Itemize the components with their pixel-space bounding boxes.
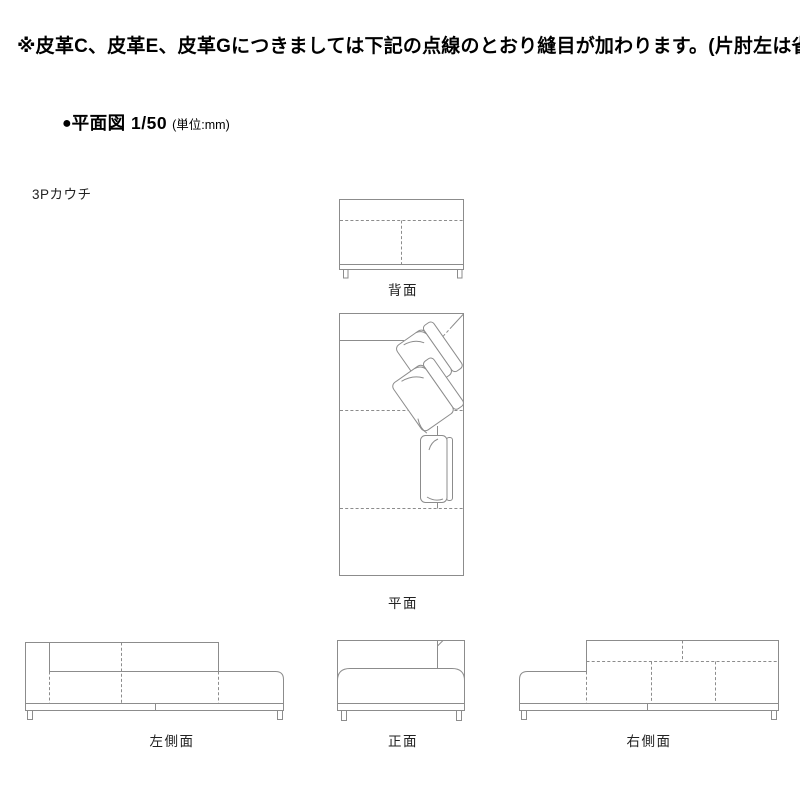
- back-leg-left: [344, 270, 349, 279]
- sofa-orthographic-drawing: [0, 0, 800, 800]
- left-side-leg-right: [278, 711, 283, 720]
- back-leg-right: [458, 270, 463, 279]
- right-side-leg-left: [522, 711, 527, 720]
- front-seat-cushion: [338, 669, 465, 704]
- right-side-view-drawing: [520, 641, 779, 720]
- front-view-drawing: [338, 641, 465, 721]
- seat-cushion-face: [421, 436, 448, 503]
- plan-view-drawing: [340, 314, 467, 576]
- plan-corner-diagonal: [452, 314, 464, 327]
- front-base-strip: [338, 704, 465, 711]
- back-view-drawing: [340, 200, 464, 279]
- back-view-label: 背面: [333, 279, 473, 299]
- left-side-view-label: 左側面: [102, 730, 242, 750]
- left-side-view-drawing: [26, 643, 284, 720]
- left-side-leg-left: [28, 711, 33, 720]
- front-leg-right: [457, 711, 462, 721]
- plan-seat-cushion: [421, 436, 453, 503]
- drawing-sheet: ※皮革C、皮革E、皮革Gにつきましては下記の点線のとおり縫目が加わります。(片肘…: [0, 0, 800, 800]
- right-side-view-label: 右側面: [579, 730, 719, 750]
- front-arm-corner-chamfer: [438, 641, 444, 647]
- right-side-leg-right: [772, 711, 777, 720]
- left-side-outline: [26, 643, 284, 711]
- back-base-strip: [340, 265, 464, 270]
- front-view-label: 正面: [333, 730, 473, 750]
- plan-view-label: 平面: [333, 592, 473, 612]
- front-leg-left: [342, 711, 347, 721]
- right-side-outline: [520, 641, 779, 711]
